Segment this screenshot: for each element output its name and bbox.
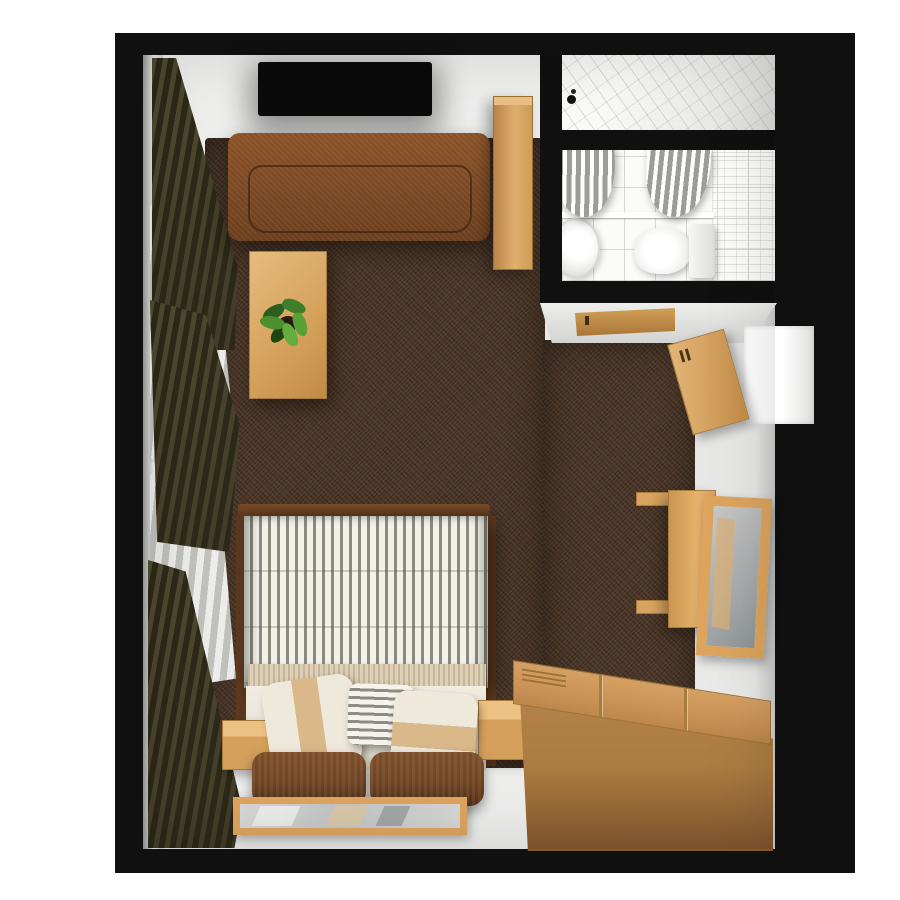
tv	[258, 62, 432, 116]
potted-plant	[258, 296, 316, 352]
shower-curtain	[645, 150, 711, 218]
floorplan-canvas	[0, 0, 900, 900]
desk-leg	[636, 600, 672, 614]
toilet-bowl	[634, 228, 692, 274]
sink	[562, 218, 600, 278]
entry-doorway	[744, 326, 814, 424]
mirror-reflection	[326, 806, 369, 826]
shower-stall	[562, 55, 775, 130]
room-interior	[143, 55, 775, 849]
desk-leg	[636, 492, 672, 506]
bed-duvet	[244, 516, 488, 688]
wardrobe-door-divider	[684, 688, 687, 730]
wall-mirror	[696, 495, 772, 658]
bathroom-floor	[562, 150, 775, 281]
bathroom-wall	[562, 130, 775, 150]
bathroom-wall	[540, 281, 775, 303]
shower-curtain	[562, 150, 618, 219]
mirror-reflection	[711, 517, 735, 630]
exterior-walls	[115, 33, 855, 873]
bathroom-wall	[540, 55, 562, 303]
bathroom-tile-wall	[712, 150, 775, 281]
mirror-reflection	[376, 806, 411, 826]
wardrobe-vents	[522, 668, 566, 689]
toilet-tank	[689, 224, 715, 278]
floor-mirror	[233, 797, 467, 835]
nightstand	[478, 700, 524, 760]
shower-head-icon	[567, 95, 576, 104]
closet-cabinet	[493, 96, 533, 270]
sofa	[228, 133, 490, 241]
mirror-reflection	[252, 806, 301, 826]
wardrobe-door-divider	[599, 675, 602, 717]
